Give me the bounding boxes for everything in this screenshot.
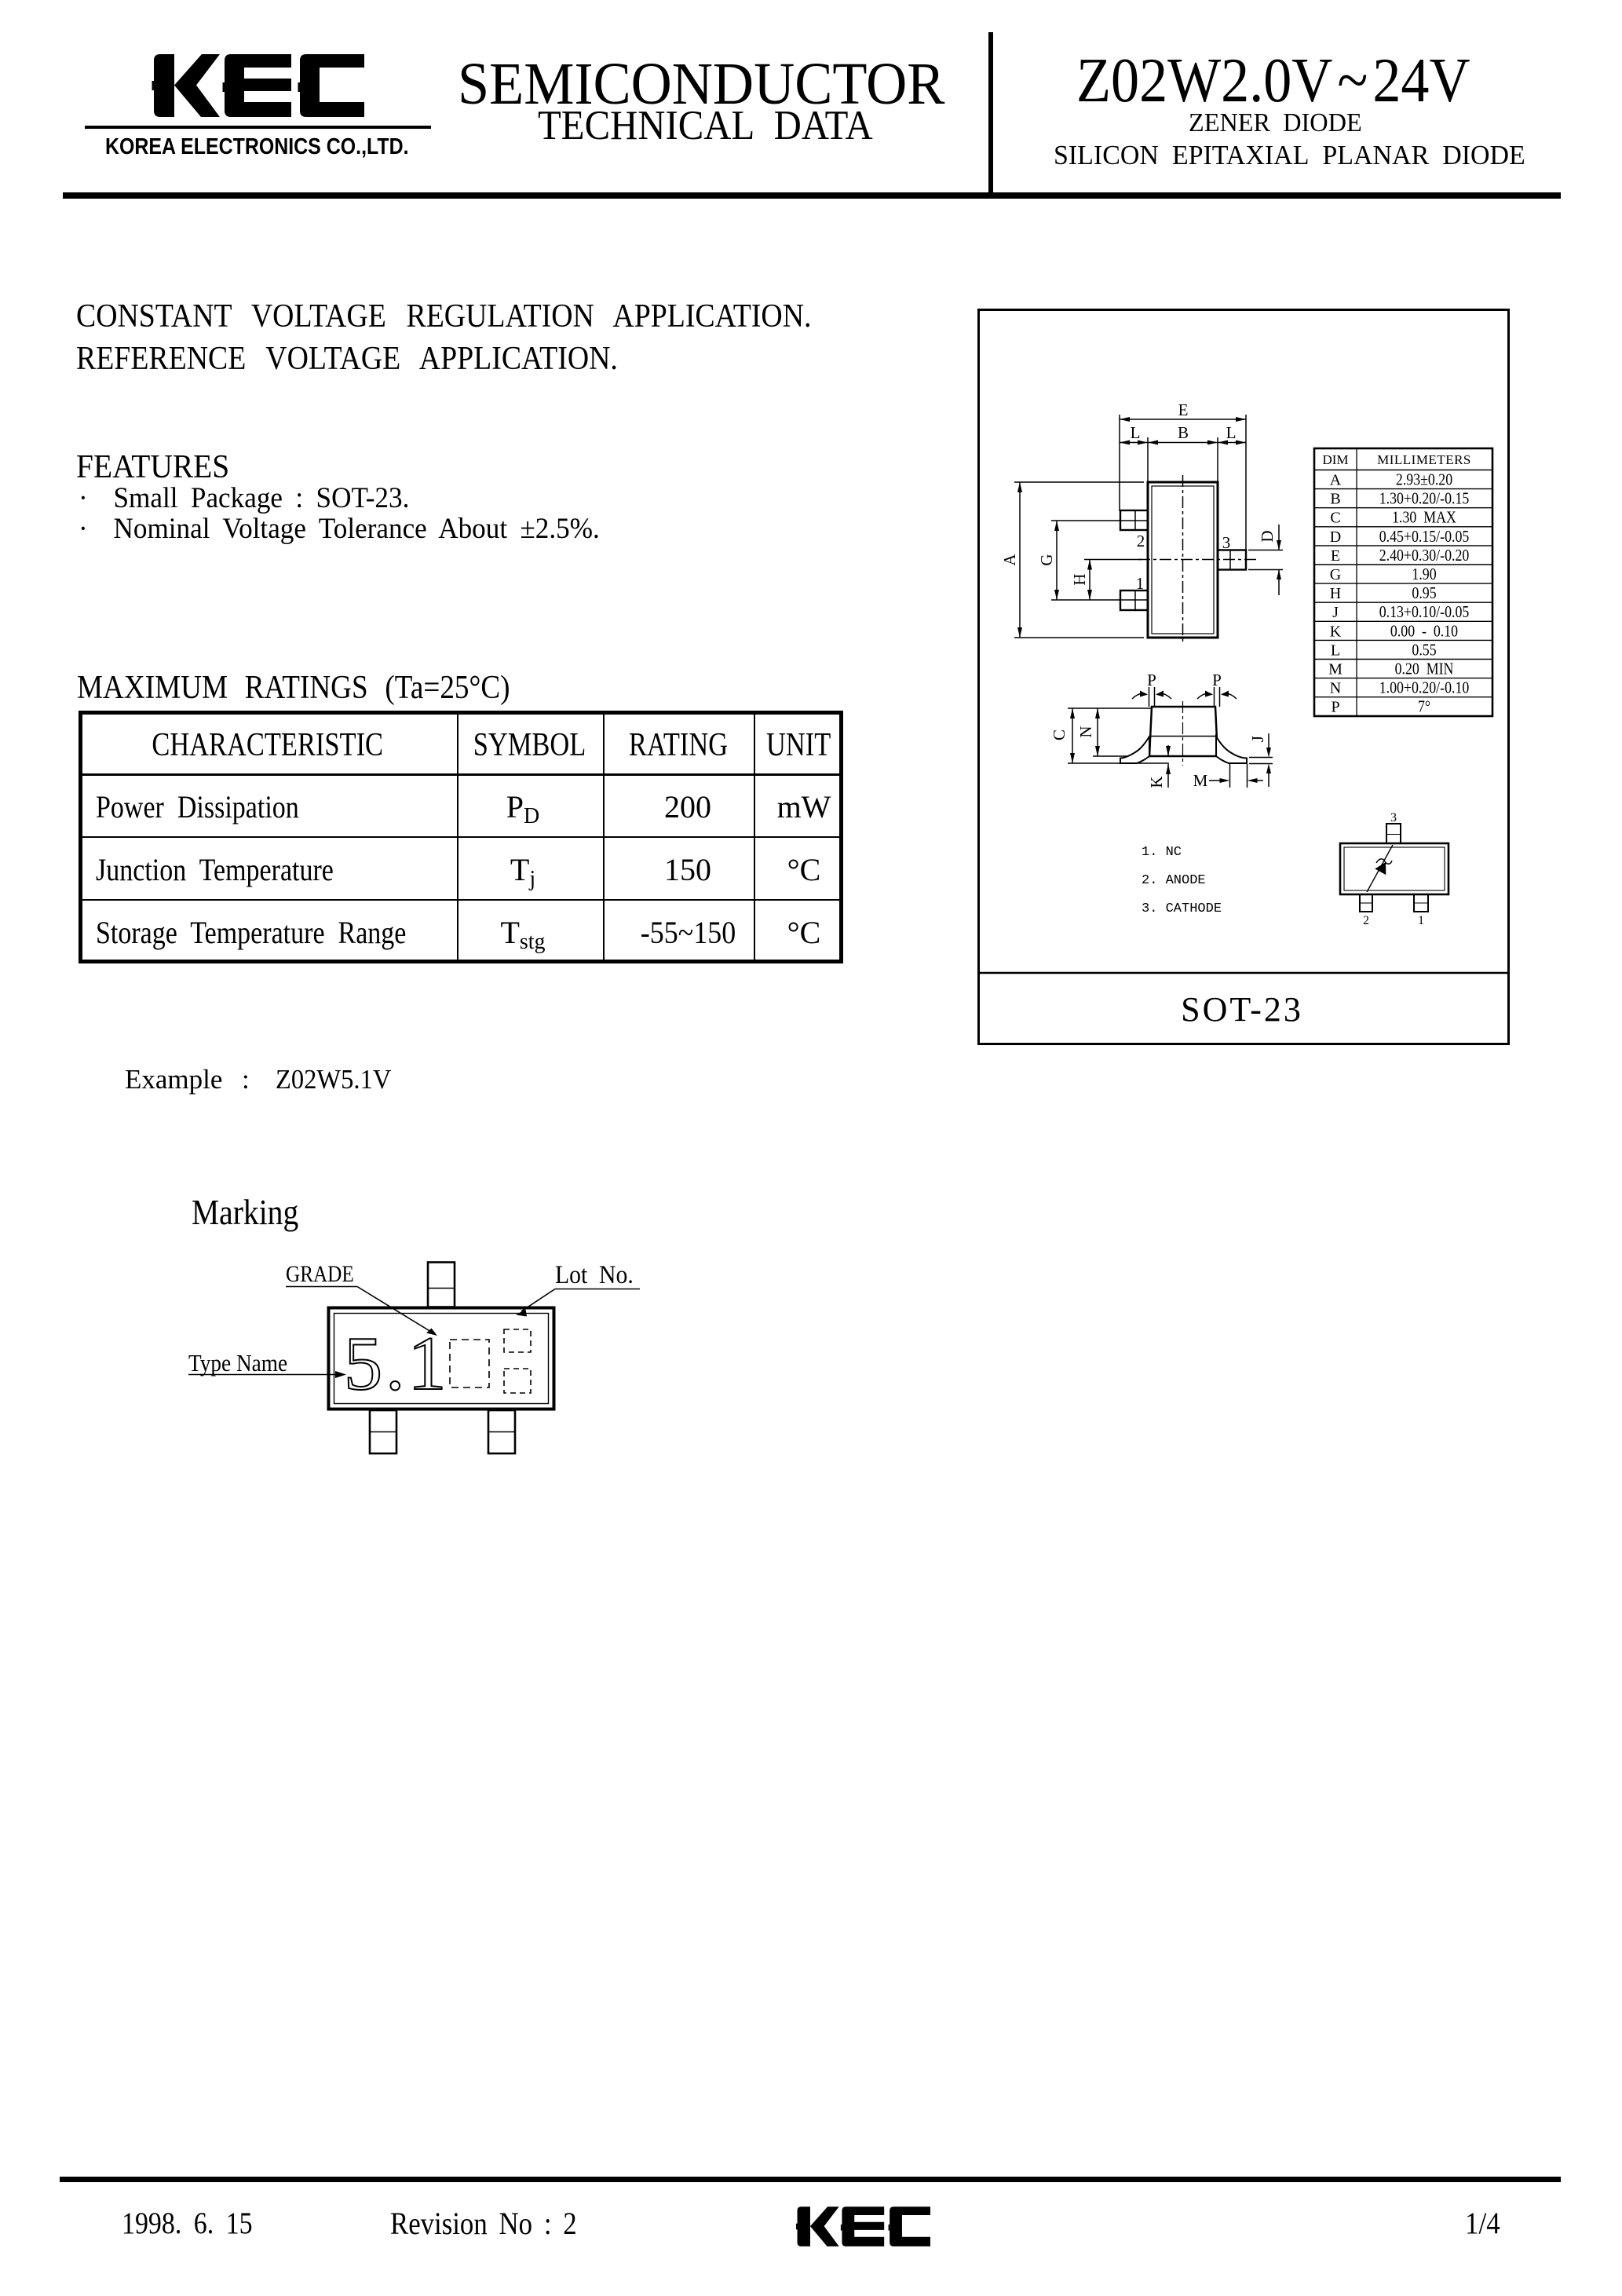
svg-text:K: K [1330,623,1342,640]
svg-text:M: M [1328,661,1343,678]
svg-text:3: 3 [1222,533,1231,552]
svg-text:D: D [1330,528,1341,546]
svg-text:MILLIMETERS: MILLIMETERS [1377,452,1471,467]
svg-text:E: E [1178,400,1189,419]
svg-text:0.00 - 0.10: 0.00 - 0.10 [1390,623,1458,641]
svg-text:L: L [1331,642,1340,659]
svg-text:P: P [1147,671,1156,689]
svg-text:3. CATHODE: 3. CATHODE [1142,901,1222,916]
svg-text:1.90: 1.90 [1412,566,1436,584]
svg-text:E: E [1331,547,1340,565]
svg-text:1.30 MAX: 1.30 MAX [1392,509,1456,527]
svg-text:3: 3 [1390,811,1397,824]
svg-text:0.20 MIN: 0.20 MIN [1395,660,1454,678]
svg-text:N: N [1076,726,1095,737]
svg-text:2.40+0.30/-0.20: 2.40+0.30/-0.20 [1379,547,1470,565]
svg-text:1.30+0.20/-0.15: 1.30+0.20/-0.15 [1379,490,1470,508]
svg-text:1: 1 [1136,574,1145,593]
svg-text:D: D [1258,530,1277,542]
svg-text:C: C [1050,729,1069,740]
svg-text:J: J [1248,736,1267,742]
svg-text:1. NC: 1. NC [1142,845,1182,860]
svg-text:H: H [1330,585,1341,602]
svg-text:2: 2 [1363,914,1369,927]
svg-text:Lot No.: Lot No. [555,1260,634,1289]
svg-text:2: 2 [1137,532,1145,550]
svg-text:2.93±0.20: 2.93±0.20 [1396,471,1452,489]
svg-text:G: G [1330,566,1341,583]
svg-text:7°: 7° [1418,698,1430,716]
svg-text:0.13+0.10/-0.05: 0.13+0.10/-0.05 [1379,604,1470,622]
svg-text:SOT-23: SOT-23 [1181,990,1303,1029]
svg-text:Type Name: Type Name [188,1350,287,1377]
svg-text:GRADE: GRADE [286,1260,354,1287]
svg-text:B: B [1178,423,1189,442]
svg-text:A: A [1330,472,1342,489]
svg-text:2. ANODE: 2. ANODE [1142,873,1206,888]
svg-text:5.1: 5.1 [344,1322,450,1406]
svg-text:A: A [1000,554,1019,566]
svg-text:H: H [1070,573,1089,585]
svg-text:K: K [1147,776,1166,788]
svg-text:P: P [1212,671,1222,689]
svg-text:N: N [1330,680,1341,697]
svg-text:M: M [1193,771,1208,790]
svg-text:C: C [1330,510,1340,527]
svg-text:P: P [1331,699,1339,716]
svg-text:1.00+0.20/-0.10: 1.00+0.20/-0.10 [1379,679,1470,697]
svg-text:L: L [1131,423,1141,442]
svg-text:B: B [1330,491,1340,508]
svg-text:J: J [1332,604,1339,621]
svg-text:L: L [1226,423,1237,442]
svg-text:0.95: 0.95 [1412,585,1436,603]
svg-text:0.45+0.15/-0.05: 0.45+0.15/-0.05 [1379,528,1470,547]
svg-text:1: 1 [1418,914,1424,927]
svg-text:G: G [1037,554,1056,565]
svg-text:DIM: DIM [1322,452,1348,467]
svg-text:0.55: 0.55 [1412,642,1436,660]
